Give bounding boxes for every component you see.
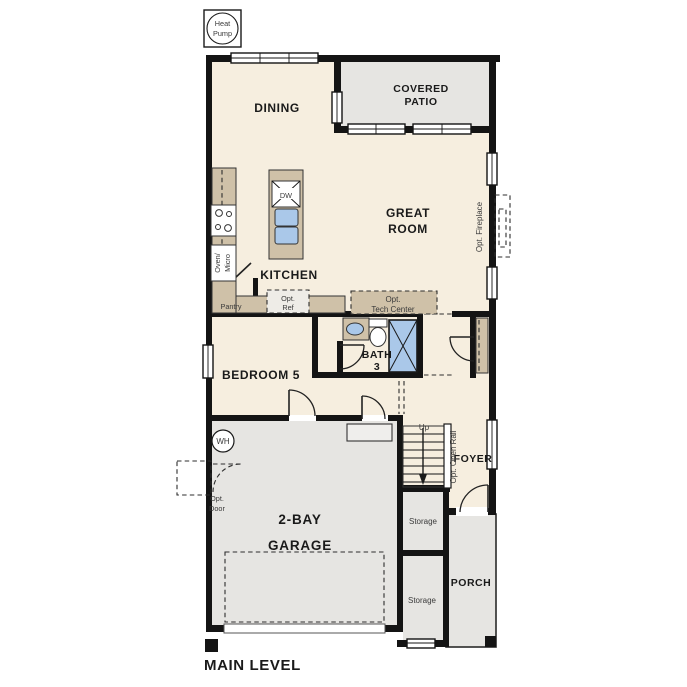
opt-door-label: Door	[209, 504, 225, 513]
wall-porch-west	[443, 492, 449, 647]
kitchen-counter-west	[212, 168, 236, 313]
oven-micro-label: Oven/	[213, 252, 222, 272]
bath-label: BATH	[362, 349, 392, 361]
opt-fireplace-inner	[499, 209, 506, 247]
storage-upper-label: Storage	[409, 517, 438, 526]
cooktop	[211, 205, 236, 236]
heat-pump-label: Pump	[213, 29, 232, 38]
floor-plan: Heat Pump DINING COVERED PATIO GREAT ROO…	[0, 0, 687, 687]
wall-hall-south-1	[206, 415, 289, 421]
wall-hall-south-2	[316, 415, 362, 421]
oven-micro-label: Micro	[223, 254, 232, 272]
toilet	[370, 328, 386, 347]
covered-patio-label: PATIO	[404, 96, 437, 108]
wall-garage-east	[397, 415, 403, 632]
bath-sink	[347, 323, 364, 335]
opt-ref-label: Ref	[282, 303, 294, 312]
up-label: Up	[419, 423, 430, 432]
toilet-tank	[369, 319, 387, 327]
covered-patio-label: COVERED	[393, 83, 448, 95]
heat-pump-label: Heat	[215, 19, 230, 28]
garage-label: GARAGE	[268, 538, 332, 553]
wall-closet-east	[470, 311, 476, 378]
water-heater-label: WH	[216, 437, 230, 446]
opt-ref-label: Opt.	[281, 294, 295, 303]
porch-pillar	[485, 636, 496, 647]
opt-door-label: Opt.	[210, 494, 224, 503]
wall-bedroom-east	[312, 311, 318, 378]
entry-closet-shelf	[476, 318, 488, 373]
main-level-marker	[205, 639, 218, 652]
wall-left	[206, 55, 212, 632]
foyer-label: FOYER	[454, 453, 493, 465]
dishwasher-label: DW	[280, 191, 292, 200]
opt-tech-label: Opt.	[385, 295, 400, 304]
bedroom5-label: BEDROOM 5	[222, 368, 300, 382]
wall-storage-divider	[397, 550, 447, 556]
floor-plan-page: Heat Pump DINING COVERED PATIO GREAT ROO…	[0, 0, 687, 687]
opt-fireplace-label: Opt. Fireplace	[475, 201, 484, 252]
bath-label: 3	[374, 361, 380, 373]
great-room-label: ROOM	[388, 222, 428, 236]
opt-door-outline	[177, 461, 211, 495]
storage-lower-label: Storage	[408, 596, 437, 605]
kitchen-label: KITCHEN	[260, 268, 318, 282]
wall-bath-south	[312, 372, 423, 378]
garage-label: 2-BAY	[278, 512, 321, 527]
pantry-label: Pantry	[220, 302, 241, 311]
wall-stairs-south	[397, 485, 450, 492]
dining-label: DINING	[254, 101, 300, 115]
opt-tech-label: Tech Center	[371, 305, 414, 314]
window	[407, 639, 435, 648]
garage-entry-step	[347, 424, 392, 441]
great-room-label: GREAT	[386, 206, 430, 220]
opt-open-rail-label: Opt. Open Rail	[449, 430, 458, 483]
garage-door	[224, 624, 385, 633]
wall-bath-east	[417, 311, 423, 378]
kitchen-sink	[275, 227, 298, 244]
main-level-title: MAIN LEVEL	[204, 657, 301, 674]
kitchen-sink	[275, 209, 298, 226]
floor-fills	[212, 62, 496, 647]
opt-fireplace-outline	[495, 195, 510, 257]
porch-label: PORCH	[451, 577, 491, 589]
